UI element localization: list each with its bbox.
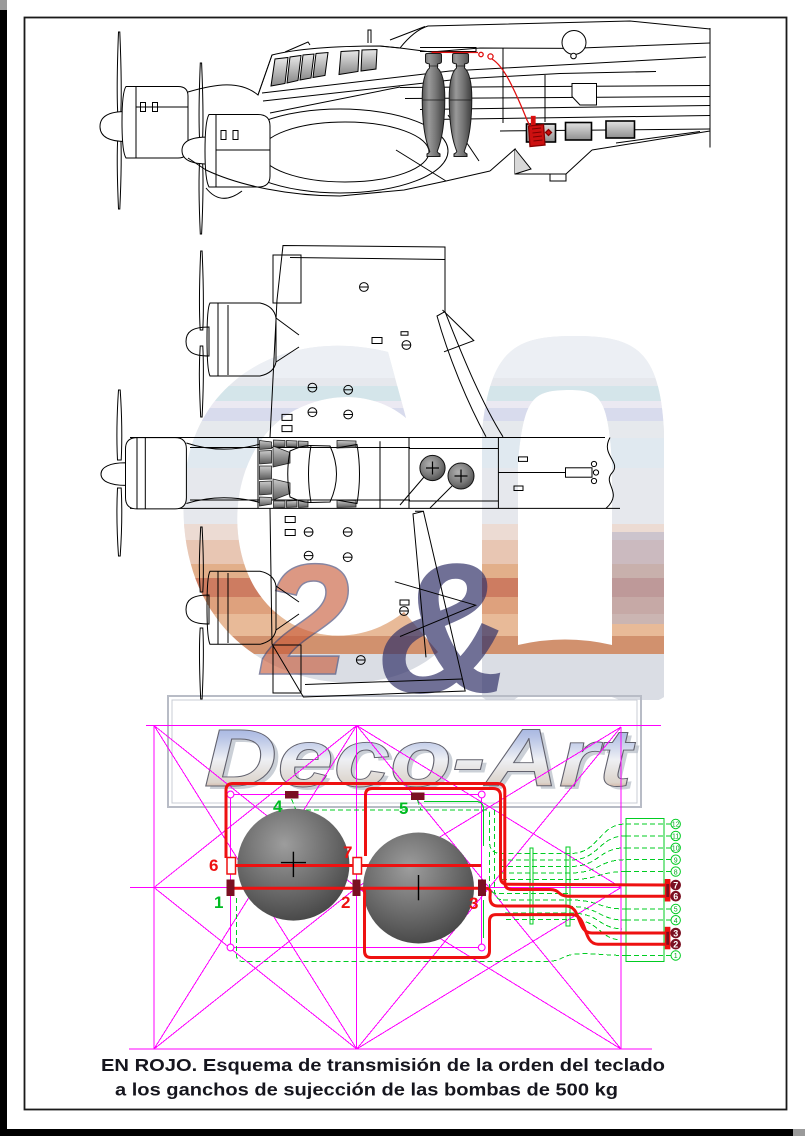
svg-text:6: 6: [209, 856, 218, 875]
svg-text:12: 12: [672, 822, 680, 829]
svg-text:2: 2: [341, 893, 350, 912]
svg-text:5: 5: [399, 799, 408, 818]
svg-text:10: 10: [672, 846, 680, 853]
svg-text:1: 1: [674, 953, 678, 960]
svg-text:2: 2: [673, 940, 678, 950]
svg-text:9: 9: [674, 857, 678, 864]
svg-text:1: 1: [214, 893, 223, 912]
svg-text:3: 3: [673, 928, 678, 938]
svg-text:&: &: [378, 525, 512, 732]
svg-text:6: 6: [673, 892, 678, 902]
svg-text:a los ganchos de sujección de: a los ganchos de sujección de las bombas…: [115, 1080, 618, 1100]
svg-text:8: 8: [674, 869, 678, 876]
svg-text:4: 4: [273, 797, 283, 816]
svg-text:7: 7: [343, 843, 352, 862]
svg-text:7: 7: [673, 880, 678, 890]
svg-text:5: 5: [674, 907, 678, 914]
svg-text:11: 11: [672, 834, 679, 841]
svg-text:Deco-Art: Deco-Art: [204, 713, 637, 804]
svg-text:3: 3: [469, 894, 478, 913]
svg-text:4: 4: [674, 918, 678, 925]
svg-text:EN ROJO. Esquema de transmisió: EN ROJO. Esquema de transmisión de la or…: [101, 1055, 665, 1075]
